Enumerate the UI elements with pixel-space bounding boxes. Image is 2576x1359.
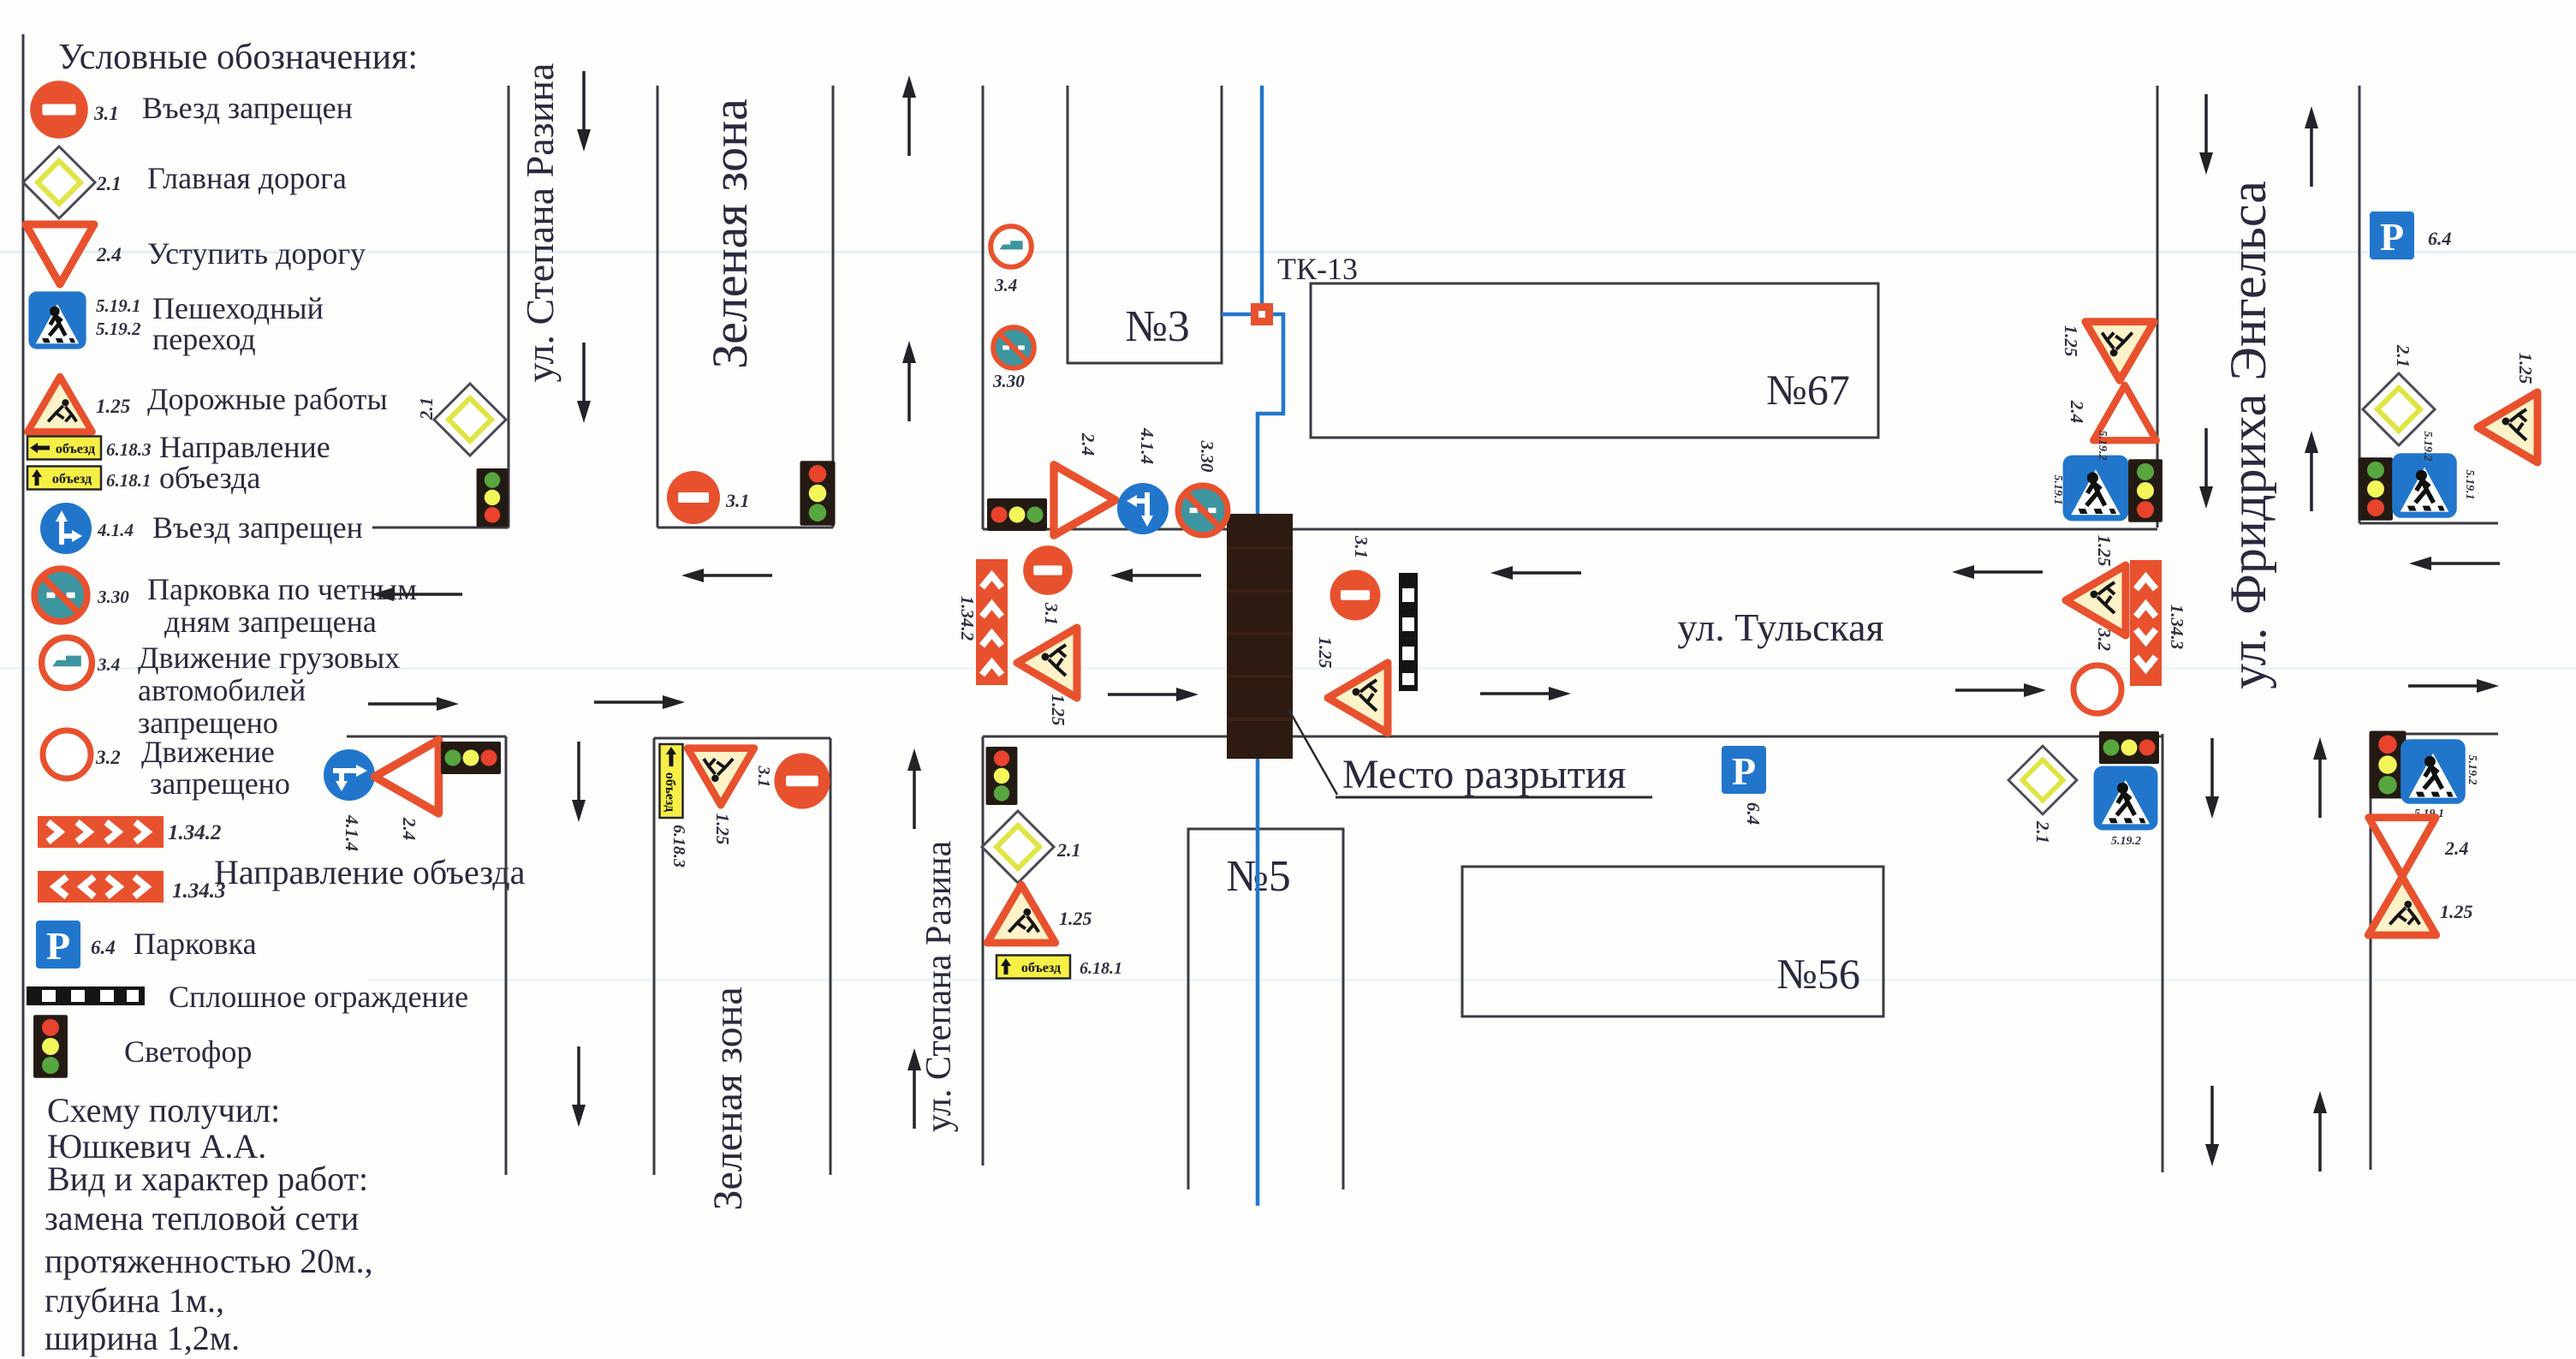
svg-text:5.19.2: 5.19.2	[2421, 432, 2434, 462]
svg-text:запрещено: запрещено	[150, 766, 290, 801]
svg-text:3.4: 3.4	[97, 654, 120, 675]
svg-text:1.25: 1.25	[712, 814, 733, 845]
svg-text:Зеленая зона: Зеленая зона	[705, 986, 751, 1210]
svg-text:6.4: 6.4	[1743, 802, 1764, 825]
svg-text:4.1.4: 4.1.4	[1137, 427, 1157, 464]
svg-text:2.1: 2.1	[2393, 344, 2413, 367]
svg-text:1.25: 1.25	[1048, 694, 1068, 726]
svg-text:5.19.2: 5.19.2	[2466, 755, 2478, 785]
svg-text:2.1: 2.1	[416, 397, 437, 420]
svg-text:Парковка по четным: Парковка по четным	[147, 572, 417, 606]
svg-text:1.25: 1.25	[1059, 908, 1092, 929]
svg-text:4.1.4: 4.1.4	[342, 814, 362, 851]
svg-text:3.2: 3.2	[95, 747, 121, 768]
svg-text:2.4: 2.4	[96, 244, 122, 265]
svg-text:глубина 1м.,: глубина 1м.,	[45, 1281, 224, 1320]
svg-text:Пешеходный: Пешеходный	[152, 291, 324, 325]
svg-text:1.25: 1.25	[2440, 901, 2473, 922]
svg-text:5.19.1: 5.19.1	[2051, 475, 2064, 505]
svg-text:Уступить дорогу: Уступить дорогу	[147, 236, 366, 271]
svg-text:№3: №3	[1125, 302, 1190, 351]
svg-text:Движение: Движение	[141, 735, 275, 769]
svg-text:ул. Фридриха Энгельса: ул. Фридриха Энгельса	[2220, 181, 2276, 689]
svg-text:6.18.3: 6.18.3	[106, 439, 152, 460]
svg-text:ул. Тульская: ул. Тульская	[1677, 605, 1883, 649]
svg-text:1.25: 1.25	[1315, 637, 1336, 669]
svg-text:6.18.1: 6.18.1	[106, 470, 152, 491]
svg-text:2.4: 2.4	[2067, 400, 2087, 423]
svg-text:Въезд запрещен: Въезд запрещен	[142, 91, 353, 125]
svg-text:Направление объезда: Направление объезда	[214, 853, 526, 891]
svg-text:6.18.1: 6.18.1	[1080, 959, 1122, 978]
svg-text:1.34.2: 1.34.2	[957, 596, 978, 641]
svg-text:5.19.2: 5.19.2	[2111, 835, 2141, 848]
svg-text:Вид и характер работ:: Вид и характер работ:	[47, 1159, 368, 1198]
svg-text:5.19.1: 5.19.1	[96, 295, 141, 316]
svg-text:Зеленая зона: Зеленая зона	[702, 98, 758, 369]
svg-text:дням запрещена: дням запрещена	[164, 605, 377, 639]
svg-text:Сплошное ограждение: Сплошное ограждение	[169, 980, 468, 1014]
svg-text:6.4: 6.4	[91, 937, 116, 958]
svg-text:3.30: 3.30	[97, 587, 129, 607]
svg-text:объезда: объезда	[159, 461, 260, 495]
svg-text:3.4: 3.4	[994, 275, 1017, 295]
svg-text:2.1: 2.1	[1056, 839, 1081, 861]
svg-text:ТК-13: ТК-13	[1277, 252, 1358, 286]
svg-text:6.4: 6.4	[2428, 228, 2452, 249]
svg-text:автомобилей: автомобилей	[138, 673, 306, 707]
svg-text:2.1: 2.1	[96, 173, 122, 194]
svg-text:3.30: 3.30	[1197, 440, 1217, 473]
svg-text:Парковка: Парковка	[134, 927, 257, 961]
svg-text:1.25: 1.25	[2515, 353, 2536, 384]
svg-text:№56: №56	[1776, 950, 1860, 998]
svg-text:Место разрытия: Место разрытия	[1342, 752, 1626, 797]
svg-text:переход: переход	[152, 322, 256, 356]
svg-text:Светофор: Светофор	[124, 1034, 252, 1069]
svg-text:замена тепловой сети: замена тепловой сети	[45, 1199, 359, 1237]
svg-text:ул. Степана Разина: ул. Степана Разина	[919, 840, 959, 1132]
svg-text:3.1: 3.1	[725, 490, 750, 511]
svg-text:Дорожные работы: Дорожные работы	[147, 382, 388, 416]
svg-text:№67: №67	[1766, 366, 1850, 414]
svg-text:5.19.1: 5.19.1	[2463, 470, 2476, 500]
svg-text:3.1: 3.1	[1351, 535, 1371, 558]
svg-text:ул. Степана Разина: ул. Степана Разина	[518, 63, 562, 383]
svg-text:1.25: 1.25	[2061, 325, 2081, 357]
svg-text:1.34.3: 1.34.3	[2167, 605, 2187, 650]
svg-text:Направление: Направление	[159, 430, 330, 464]
svg-text:Условные обозначения:: Условные обозначения:	[58, 38, 418, 77]
svg-text:Схему получил:: Схему получил:	[47, 1091, 280, 1130]
svg-text:1.25: 1.25	[96, 396, 130, 417]
svg-text:2.4: 2.4	[1078, 432, 1098, 456]
svg-text:5.19.2: 5.19.2	[96, 319, 141, 339]
svg-text:2.4: 2.4	[399, 817, 419, 840]
svg-text:ширина 1,2м.: ширина 1,2м.	[45, 1319, 240, 1357]
svg-text:2.4: 2.4	[2444, 837, 2469, 859]
svg-text:3.2: 3.2	[2094, 628, 2115, 652]
svg-text:Главная дорога: Главная дорога	[147, 161, 347, 195]
svg-text:3.1: 3.1	[93, 103, 119, 124]
svg-text:3.1: 3.1	[1041, 602, 1062, 625]
svg-text:2.1: 2.1	[2032, 820, 2053, 843]
svg-text:3.30: 3.30	[992, 371, 1025, 391]
svg-text:1.25: 1.25	[2094, 535, 2115, 567]
svg-text:1.34.2: 1.34.2	[168, 821, 222, 844]
svg-text:протяженностью 20м.,: протяженностью 20м.,	[45, 1242, 373, 1280]
svg-text:4.1.4: 4.1.4	[97, 520, 134, 540]
svg-text:1.34.3: 1.34.3	[172, 879, 226, 903]
svg-text:Движение грузовых: Движение грузовых	[138, 641, 400, 675]
svg-text:5.19.2: 5.19.2	[2096, 431, 2109, 461]
svg-text:3.1: 3.1	[754, 766, 773, 788]
svg-text:6.18.3: 6.18.3	[669, 825, 688, 867]
svg-text:Въезд запрещен: Въезд запрещен	[152, 510, 363, 545]
